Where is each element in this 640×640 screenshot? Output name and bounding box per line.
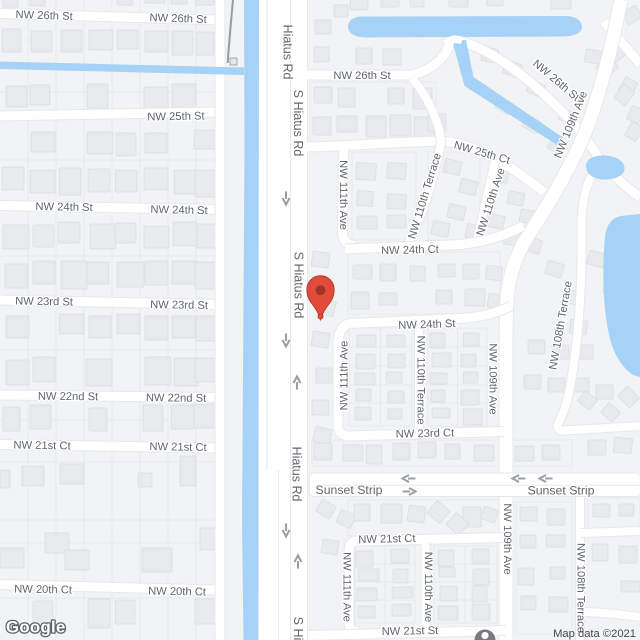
svg-text:NW 25th St: NW 25th St (147, 110, 205, 123)
svg-text:NW 109th Ave: NW 109th Ave (501, 503, 513, 574)
svg-text:NW 108th Terrace: NW 108th Terrace (575, 543, 587, 633)
svg-text:NW 111th Ave: NW 111th Ave (341, 552, 353, 622)
svg-text:NW 21st St: NW 21st St (382, 625, 440, 638)
svg-text:Hiatus Rd: Hiatus Rd (290, 447, 304, 502)
svg-text:Google: Google (6, 618, 66, 637)
svg-text:NW 26th St: NW 26th St (149, 12, 207, 26)
svg-text:S Hiatus Rd: S Hiatus Rd (291, 90, 305, 157)
svg-text:S Hiatus Rd: S Hiatus Rd (291, 617, 305, 640)
svg-text:Sunset Strip: Sunset Strip (528, 484, 595, 498)
svg-text:NW 24th St: NW 24th St (398, 318, 456, 332)
svg-text:NW 21st Ct: NW 21st Ct (149, 441, 207, 454)
svg-text:NW 109th Ave: NW 109th Ave (487, 343, 499, 414)
svg-text:NW 21st Ct: NW 21st Ct (358, 533, 416, 547)
svg-text:NW 24th Ct: NW 24th Ct (381, 244, 440, 258)
svg-text:NW 26th St: NW 26th St (15, 9, 73, 23)
svg-text:NW 20th Ct: NW 20th Ct (14, 583, 73, 596)
svg-text:NW 110th Terrace: NW 110th Terrace (415, 335, 427, 424)
svg-text:Map data ©2021: Map data ©2021 (553, 628, 636, 640)
svg-text:NW 110th Ave: NW 110th Ave (422, 552, 434, 622)
svg-text:NW 111th Ave: NW 111th Ave (339, 341, 351, 411)
svg-text:NW 21st Ct: NW 21st Ct (13, 440, 71, 453)
svg-text:NW 24th St: NW 24th St (35, 201, 93, 214)
svg-text:NW 26th St: NW 26th St (333, 70, 391, 82)
svg-text:Sunset Strip: Sunset Strip (316, 483, 383, 497)
svg-text:NW 20th Ct: NW 20th Ct (148, 585, 207, 598)
svg-text:NW 22nd St: NW 22nd St (38, 391, 99, 404)
svg-text:NW 24th St: NW 24th St (150, 204, 208, 217)
svg-text:NW 23rd Ct: NW 23rd Ct (396, 427, 456, 441)
svg-text:NW 22nd St: NW 22nd St (146, 392, 207, 405)
svg-text:S Hiatus Rd: S Hiatus Rd (292, 252, 306, 319)
svg-text:NW 23rd St: NW 23rd St (15, 295, 74, 308)
svg-text:Hiatus Rd: Hiatus Rd (281, 25, 295, 80)
svg-text:NW 111th Ave: NW 111th Ave (337, 160, 349, 230)
svg-text:NW 23rd St: NW 23rd St (150, 299, 209, 312)
